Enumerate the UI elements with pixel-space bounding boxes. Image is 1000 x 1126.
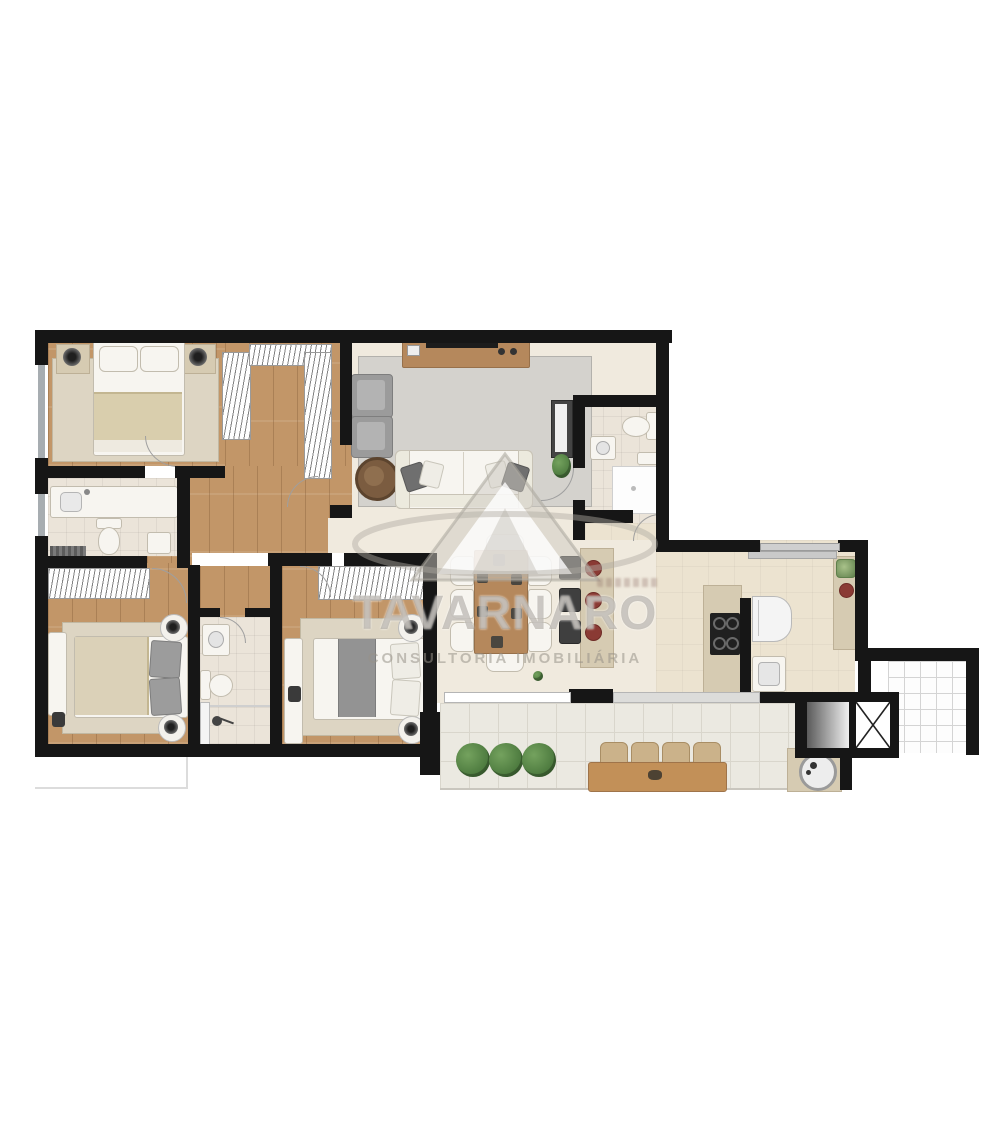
bedroom3-lamp-bottom [404, 722, 418, 736]
wall-bath3-right [270, 566, 282, 744]
wall-balcony-right [840, 748, 852, 790]
burner-3 [713, 637, 726, 650]
balcony-wall-segment [569, 689, 613, 703]
place-setting-3 [511, 574, 522, 585]
lamp-left [63, 348, 81, 366]
dining-plant-small [533, 671, 543, 681]
bedroom3-wardrobe [318, 566, 424, 600]
master-bed-blanket [94, 392, 182, 442]
bar-stool-2 [559, 588, 581, 612]
bedroom2-desk [48, 632, 67, 716]
elevator-x-icon [856, 702, 890, 748]
bedroom2-desk-chair [52, 712, 65, 727]
armchair-2-seat [357, 422, 385, 450]
wall-ensuite-right [177, 466, 190, 568]
wall-lavabo-top [573, 395, 669, 407]
bedroom2-wardrobe [48, 568, 150, 599]
floor-hall-dining-link [328, 518, 354, 553]
wall-left-c [35, 536, 48, 757]
living-partition-inner [555, 404, 567, 452]
sofa-backrest [396, 494, 530, 507]
wall-right-top [656, 338, 669, 547]
floor-hallway [185, 466, 352, 553]
island-plate-1 [585, 560, 602, 577]
wall-bedroom3-top [268, 553, 437, 566]
wall-right-horizontal [855, 648, 979, 661]
bar-stool-3 [559, 620, 581, 644]
island-plate-2 [585, 592, 602, 609]
wall-service-divider [740, 598, 751, 698]
lavabo-sink-basin [596, 441, 610, 455]
coffee-table-inner [364, 466, 384, 486]
ensuite-sink [60, 492, 82, 512]
kitchen-sliding-door [760, 543, 840, 551]
sofa-seam [463, 452, 464, 494]
wall-left-b [35, 458, 48, 494]
bedroom2-pillow-1 [149, 640, 183, 679]
ensuite-toilet-bowl [98, 527, 120, 555]
place-setting-1 [493, 554, 505, 566]
balcony-plant-2 [489, 743, 523, 777]
lamp-right [189, 348, 207, 366]
bedroom2-blanket [75, 637, 149, 715]
shaft-duct [807, 702, 849, 748]
dining-chair-l2 [450, 589, 474, 619]
wall-bath3-top-a [200, 608, 220, 617]
console-box [407, 345, 420, 356]
counter-plant [836, 559, 856, 578]
bedroom3-runner [338, 639, 376, 717]
balcony-door-sill-2 [613, 692, 760, 703]
lower-unit-outline-v [186, 753, 188, 789]
bedroom2-lamp-bottom [164, 720, 178, 734]
bedroom3-pillow-1 [390, 642, 421, 680]
wall-lavabo-bottom [582, 510, 633, 523]
wall-hall-stub [330, 505, 352, 518]
wall-closet-living [340, 330, 352, 445]
wall-master-bath-a [48, 466, 145, 478]
floorplan-page: { "watermark": { "brand": "TAVARNARO", "… [0, 0, 1000, 1126]
window-ensuite [35, 494, 48, 536]
place-setting-2 [477, 572, 488, 583]
dining-chair-r1 [528, 556, 552, 586]
bath3-toilet-bowl [209, 674, 233, 697]
dining-chair-r2 [528, 589, 552, 619]
wall-left-a [35, 330, 48, 365]
ensuite-bidet [147, 532, 171, 554]
external-hatched-area [888, 661, 966, 753]
wall-ensuite-bottom [35, 556, 147, 568]
refrigerator-line [758, 600, 759, 636]
wall-far-right [966, 661, 979, 755]
burner-1 [713, 617, 726, 630]
balcony-door-sill-1 [444, 692, 571, 703]
wall-kitchen-top-a [656, 540, 760, 552]
wall-balcony-stub [420, 712, 440, 775]
place-setting-6 [491, 636, 503, 648]
dining-chair-r3 [528, 622, 552, 652]
grill-coal-1 [810, 762, 817, 769]
kitchen-shelf [748, 551, 837, 559]
bedroom3-desk-chair [288, 686, 301, 702]
armchair-1-seat [357, 380, 385, 410]
elevator-shaft [856, 702, 890, 748]
wall-bottom-bedrooms [35, 744, 440, 757]
lavabo-toilet-bowl [622, 416, 650, 437]
balcony-plant-1 [456, 743, 490, 777]
bedroom2-lamp-top [166, 620, 180, 634]
bedroom3-pillow-2 [390, 679, 421, 717]
dining-chair-l3 [450, 622, 474, 652]
bath3-shower-divider [200, 705, 270, 707]
wall-bedroom2-bath3 [188, 565, 200, 744]
bath3-half-wall [200, 702, 210, 746]
barbecue-grill [799, 753, 837, 791]
console-dot-1 [498, 348, 505, 355]
bedroom2-pillow-2 [149, 677, 183, 716]
pillow-master-2 [140, 346, 179, 372]
place-setting-5 [511, 608, 522, 619]
window-master-bedroom [35, 365, 48, 458]
outdoor-table-centerpiece [648, 770, 662, 780]
bedroom3-door-gap [332, 553, 344, 566]
lavabo-shower-drain [631, 486, 636, 491]
closet-unit-right [304, 352, 332, 479]
grill-coal-2 [806, 770, 811, 775]
lower-unit-outline-h [35, 787, 188, 789]
balcony-plant-3 [522, 743, 556, 777]
burner-4 [726, 637, 739, 650]
laundry-sink-basin [758, 662, 780, 686]
console-dot-2 [510, 348, 517, 355]
island-plate-3 [585, 624, 602, 641]
dining-chair-l1 [450, 556, 474, 586]
pillow-master-1 [99, 346, 138, 372]
tv [426, 343, 498, 348]
burner-2 [726, 617, 739, 630]
wall-top [35, 330, 672, 343]
wall-kitchen-right [855, 540, 868, 661]
ensuite-faucet [84, 489, 90, 495]
counter-red-item [839, 583, 854, 598]
place-setting-4 [477, 606, 488, 617]
bar-stool-1 [559, 556, 581, 580]
bedroom3-lamp-top [404, 620, 418, 634]
wall-bath3-top-b [245, 608, 270, 617]
closet-unit-left [222, 352, 251, 440]
